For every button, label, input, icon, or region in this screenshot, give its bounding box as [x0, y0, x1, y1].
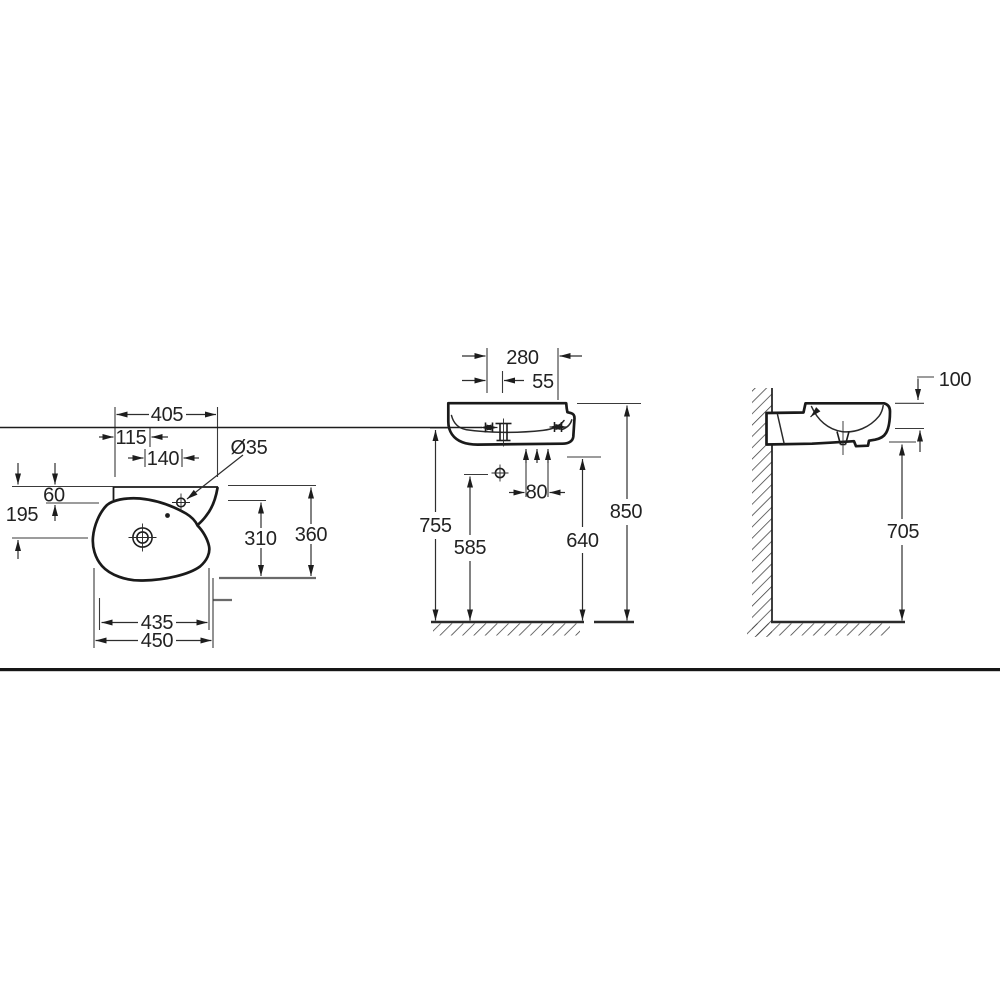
- wall-hole-symbol: [492, 465, 509, 482]
- front-ground-hatch: [433, 624, 580, 636]
- technical-drawing-page: 405 115 140 Ø35 60 195 310 360 435 450: [0, 0, 1000, 1000]
- basin-wing-edge: [197, 488, 218, 526]
- dim-plan-hole-offset: 115: [116, 427, 147, 449]
- washbasin-dimension-drawing: 405 115 140 Ø35 60 195 310 360 435 450: [0, 0, 1000, 1000]
- dim-front-underside-height: 755: [419, 515, 452, 537]
- dia35-leader: [187, 455, 243, 499]
- dim-front-fixing-height: 640: [566, 530, 599, 552]
- separator-line: [0, 668, 1000, 671]
- plan-view: 405 115 140 Ø35 60 195 310 360 435 450: [6, 404, 328, 652]
- side-view: 100 705: [747, 369, 971, 637]
- dim-front-tap-spacing: 280: [506, 347, 539, 369]
- dim-plan-rim-to-hole: 60: [43, 485, 65, 507]
- dim-plan-total-depth: 360: [295, 524, 328, 546]
- front-view: 280 55 80 755 585 640 850: [0, 347, 642, 636]
- side-basin-profile: [767, 403, 891, 446]
- dim-front-side-offset: 55: [532, 371, 554, 393]
- side-ground-hatch: [747, 624, 890, 636]
- dim-side-apron-height: 100: [939, 369, 972, 391]
- tap-knockout-left: [0, 423, 498, 433]
- dim-side-floor-clearance: 705: [887, 521, 920, 543]
- dim-plan-top-width: 405: [151, 404, 184, 426]
- dim-plan-inner-depth: 310: [244, 528, 277, 550]
- dim-front-lower-fixing-height: 585: [454, 537, 487, 559]
- dim-plan-hole-spacing: 140: [147, 448, 180, 470]
- dim-plan-rim-to-drain: 195: [6, 504, 39, 526]
- overflow-mark: [165, 513, 170, 518]
- dim-front-rim-height: 850: [610, 501, 643, 523]
- dim-plan-hole-diameter: Ø35: [231, 437, 268, 459]
- dim-plan-overall-width: 450: [141, 630, 174, 652]
- bowl-outline: [93, 498, 210, 580]
- dim-front-fixing-spacing: 80: [526, 482, 548, 504]
